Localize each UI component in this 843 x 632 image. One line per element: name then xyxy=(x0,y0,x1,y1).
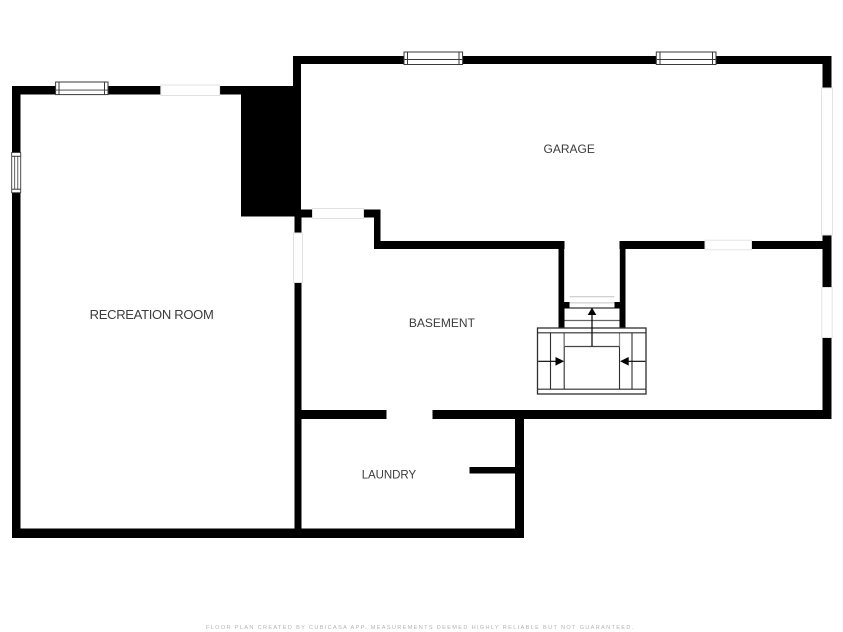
svg-text:BASEMENT: BASEMENT xyxy=(409,316,476,330)
svg-text:RECREATION ROOM: RECREATION ROOM xyxy=(90,307,214,322)
svg-text:FLOOR PLAN CREATED BY CUBICASA: FLOOR PLAN CREATED BY CUBICASA APP. MEAS… xyxy=(206,625,635,631)
svg-text:LAUNDRY: LAUNDRY xyxy=(362,469,417,481)
svg-text:GARAGE: GARAGE xyxy=(544,142,595,156)
